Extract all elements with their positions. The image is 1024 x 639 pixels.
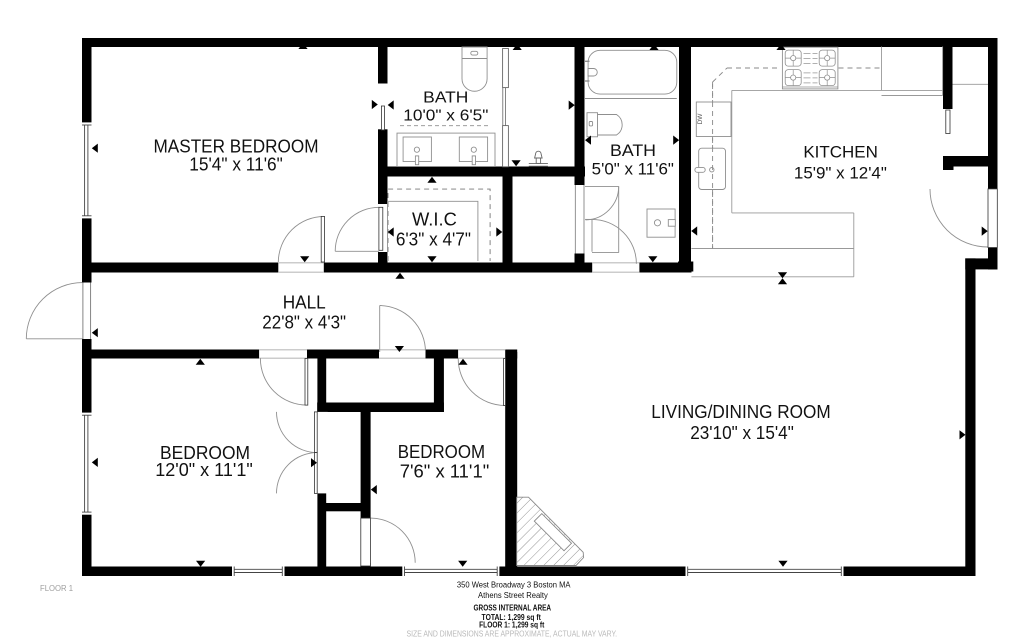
- svg-text:LIVING/DINING ROOM: LIVING/DINING ROOM: [651, 402, 830, 422]
- svg-text:Athens Street Realty: Athens Street Realty: [478, 590, 548, 600]
- svg-text:15'4" x 11'6": 15'4" x 11'6": [189, 153, 283, 174]
- svg-text:BEDROOM: BEDROOM: [398, 441, 485, 462]
- svg-text:23'10" x 15'4": 23'10" x 15'4": [690, 423, 794, 443]
- svg-text:22'8" x 4'3": 22'8" x 4'3": [262, 312, 346, 332]
- svg-text:KITCHEN: KITCHEN: [803, 144, 878, 162]
- svg-text:FLOOR 1: 1,299 sq ft: FLOOR 1: 1,299 sq ft: [479, 621, 544, 630]
- svg-text:10'0" x 6'5": 10'0" x 6'5": [403, 108, 488, 125]
- svg-text:HALL: HALL: [283, 293, 326, 313]
- svg-text:BATH: BATH: [610, 142, 656, 160]
- svg-text:DW: DW: [697, 113, 704, 125]
- svg-text:15'9" x 12'4": 15'9" x 12'4": [794, 164, 887, 182]
- svg-text:350 West Broadway 3 Boston MA: 350 West Broadway 3 Boston MA: [457, 580, 571, 590]
- svg-text:6'3" x 4'7": 6'3" x 4'7": [396, 230, 471, 250]
- svg-text:GROSS INTERNAL AREA: GROSS INTERNAL AREA: [474, 603, 552, 612]
- svg-text:W.I.C: W.I.C: [412, 210, 457, 230]
- svg-text:5'0" x 11'6": 5'0" x 11'6": [592, 161, 674, 179]
- svg-text:12'0" x 11'1": 12'0" x 11'1": [155, 459, 253, 480]
- svg-text:BATH: BATH: [423, 89, 468, 106]
- svg-text:FLOOR 1: FLOOR 1: [40, 584, 74, 593]
- svg-text:SIZE AND DIMENSIONS ARE APPROX: SIZE AND DIMENSIONS ARE APPROXIMATE, ACT…: [407, 629, 618, 638]
- svg-text:7'6" x 11'1": 7'6" x 11'1": [400, 461, 490, 482]
